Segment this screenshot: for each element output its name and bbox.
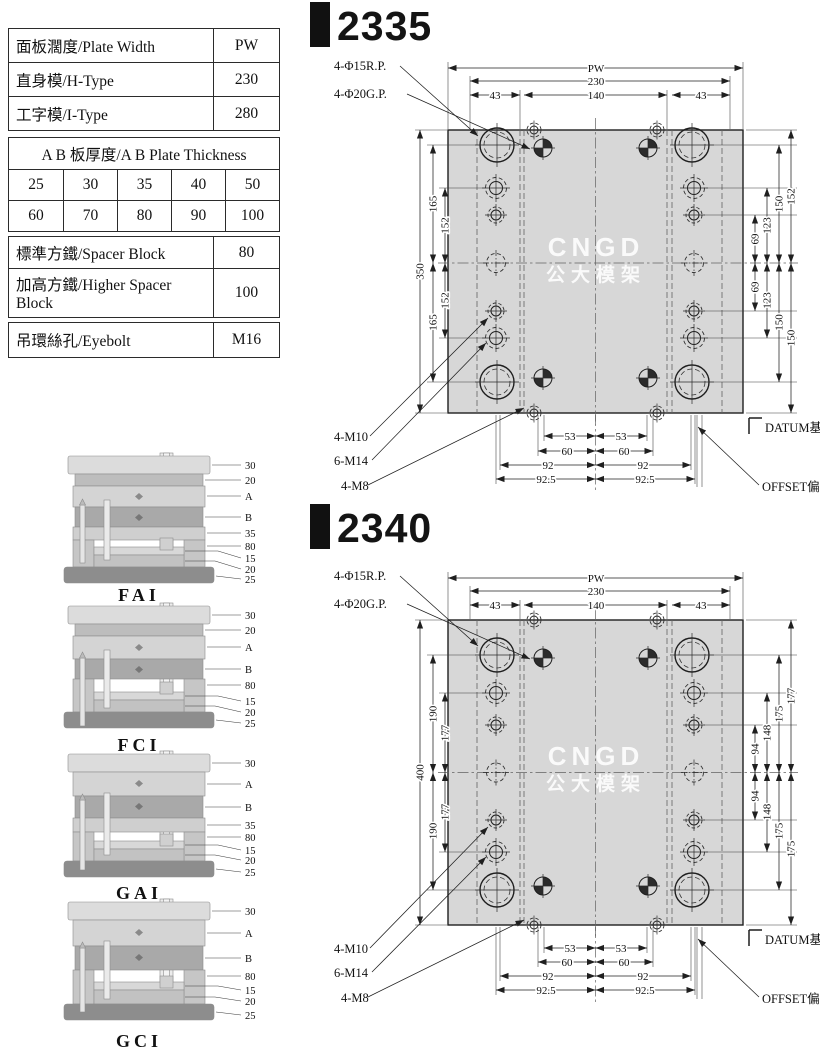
layer-label: 20 [245,856,256,867]
mold-drawing [64,453,214,583]
row-label: 直身模/H-Type [9,63,213,96]
dim-right-2-bot: 148 [762,803,774,820]
table-header: A B 板厚度/A B Plate Thickness [9,138,279,170]
thickness-cell: 30 [63,170,117,200]
dim-right-1-top: 94 [750,743,762,755]
label-return-pin: 4-Φ15R.P. [334,59,386,73]
thickness-cell: 50 [225,170,279,200]
dim-left-inner-bot: 177 [440,803,452,820]
dim-edge-left: 43 [490,90,502,102]
mold-section-fai: 30 20 A B 35 80 15 20 25 FAI [42,450,277,608]
layer-label: A [245,780,253,791]
layer-label: 30 [245,907,256,918]
layer-label: 35 [245,821,256,832]
dim-right-4-bot: 175 [786,840,798,857]
layer-label: B [245,665,252,676]
layer-label: 25 [245,575,256,586]
dim-right-4-top: 152 [786,188,798,205]
layer-label: B [245,803,252,814]
label-m14: 6-M14 [334,454,369,468]
dim-left-inner-bot: 152 [440,292,452,309]
layer-label: 80 [245,972,256,983]
dim-right-4-bot: 150 [786,329,798,346]
label-datum: DATUM基準面 [765,932,820,947]
row-value: PW [213,29,279,62]
dim-bot-4-l: 92.5 [536,985,556,997]
label-m10: 4-M10 [334,942,368,956]
dim-bot-3-r: 92 [638,460,649,472]
mold-drawing [64,899,214,1020]
row-value: 100 [213,269,279,317]
label-m10: 4-M10 [334,430,368,444]
thickness-cell: 80 [117,200,171,231]
dim-height: 400 [415,764,427,781]
table-row: 工字模/I-Type 280 [9,96,279,130]
dim-inner-width: 140 [588,600,605,612]
dim-bot-2-r: 60 [619,446,631,458]
table-row: 吊環絲孔/Eyebolt M16 [9,323,279,357]
drawing-number: 2340 [337,505,432,551]
dim-inner-width: 140 [588,90,605,102]
drawing-2335: 2335 CNGD 公大模架 [310,2,820,494]
table-row: 加高方鐵/Higher Spacer Block 100 [9,268,279,317]
dim-edge-right: 43 [696,600,708,612]
dim-right-3-top: 175 [774,705,786,722]
drawing-2340: 2340 CNGD 公大模架 [310,504,820,1006]
layer-label: A [245,492,253,503]
catalog-page: { "tables": { "plate": [ {"label": "面板濶度… [0,0,820,1054]
layer-label: 25 [245,1011,256,1022]
thickness-cell: 100 [225,200,279,231]
layer-label: 80 [245,833,256,844]
dim-right-2-top: 148 [762,724,774,741]
layer-label: 15 [245,986,256,997]
layer-label: 80 [245,542,256,553]
row-value: 80 [213,237,279,268]
table-row: 標準方鐵/Spacer Block 80 [9,237,279,268]
mold-drawing [64,603,214,728]
row-label: 加高方鐵/Higher Spacer Block [9,269,213,317]
label-return-pin: 4-Φ15R.P. [334,569,386,583]
table-row: 面板濶度/Plate Width PW [9,29,279,62]
layer-label: 15 [245,554,256,565]
layer-label: 30 [245,461,256,472]
thickness-cell: 90 [171,200,225,231]
watermark-name: 公大模架 [546,263,646,286]
dim-bot-4-r: 92.5 [635,985,655,997]
dim-pw: PW [588,63,605,75]
dim-right-2-bot: 123 [762,292,774,309]
dim-bot-2-l: 60 [562,957,574,969]
title-bar [310,504,330,549]
dim-right-1-bot: 94 [750,790,762,802]
dim-right-2-top: 123 [762,217,774,234]
layer-label: 20 [245,476,256,487]
row-label: 標準方鐵/Spacer Block [9,237,213,268]
layer-label: A [245,643,253,654]
layer-label: B [245,513,252,524]
thickness-cell: 70 [63,200,117,231]
layer-label: 30 [245,611,256,622]
layer-label: 25 [245,868,256,879]
label-m8: 4-M8 [341,991,369,1005]
drawing-number: 2335 [337,3,432,49]
row-label: 工字模/I-Type [9,97,213,130]
thickness-grid: 25 30 35 40 50 60 70 80 90 100 [9,170,279,231]
dim-width: 230 [588,586,605,598]
dim-right-4-top: 177 [786,687,798,704]
watermark-name: 公大模架 [546,772,646,795]
dim-left-outer-bot: 190 [428,822,440,839]
label-offset: OFFSET偏孔 [762,479,820,494]
label-m14: 6-M14 [334,966,369,980]
layer-label: 20 [245,626,256,637]
mold-section-fci: 30 20 A B 80 15 20 25 FCI [42,600,277,758]
layer-label: B [245,954,252,965]
row-label: 面板濶度/Plate Width [9,29,213,62]
dim-right-3-bot: 150 [774,314,786,331]
dim-bot-3-r: 92 [638,971,649,983]
dim-edge-right: 43 [696,90,708,102]
ab-plate-thickness-table: A B 板厚度/A B Plate Thickness 25 30 35 40 … [8,137,280,232]
watermark-logo: CNGD [548,232,645,262]
thickness-cell: 40 [171,170,225,200]
dim-bot-4-l: 92.5 [536,474,556,486]
label-m8: 4-M8 [341,479,369,493]
eyebolt-table: 吊環絲孔/Eyebolt M16 [8,322,280,358]
row-label: 吊環絲孔/Eyebolt [9,323,213,357]
label-offset: OFFSET偏孔 [762,991,820,1006]
dim-bot-2-l: 60 [562,446,574,458]
layer-label: 20 [245,708,256,719]
label-guide-pin: 4-Φ20G.P. [334,87,387,101]
technical-drawings: 2335 CNGD 公大模架 [310,0,820,1054]
thickness-cell: 25 [9,170,63,200]
label-guide-pin: 4-Φ20G.P. [334,597,387,611]
watermark-logo: CNGD [548,741,645,771]
dim-edge-left: 43 [490,600,502,612]
dim-right-3-top: 150 [774,195,786,212]
dim-right-1-top: 69 [750,233,762,245]
row-value: 280 [213,97,279,130]
dim-left-outer-top: 165 [428,195,440,212]
row-value: 230 [213,63,279,96]
dim-bot-4-r: 92.5 [635,474,655,486]
datum-symbol [749,930,762,946]
layer-label: 15 [245,697,256,708]
dim-bot-1-r: 53 [616,943,628,955]
datum-symbol [749,418,762,434]
dim-bot-2-r: 60 [619,957,631,969]
mold-section-gai: 30 A B 35 80 15 20 25 GAI [42,748,277,906]
dim-bot-3-l: 92 [543,971,554,983]
dim-bot-1-l: 53 [565,943,577,955]
dim-left-outer-top: 190 [428,705,440,722]
dim-right-3-bot: 175 [774,822,786,839]
layer-label: 20 [245,997,256,1008]
layer-label: 35 [245,529,256,540]
thickness-cell: 35 [117,170,171,200]
dim-pw: PW [588,573,605,585]
row-value: M16 [213,323,279,357]
layer-label: 80 [245,681,256,692]
label-datum: DATUM基準面 [765,420,820,435]
dim-right-1-bot: 69 [750,281,762,293]
dim-bot-1-l: 53 [565,431,577,443]
dim-left-inner-top: 177 [440,724,452,741]
dim-width: 230 [588,76,605,88]
section-name: GCI [116,1031,162,1051]
dim-bot-3-l: 92 [543,460,554,472]
mold-drawing [64,751,214,877]
plate-width-table: 面板濶度/Plate Width PW 直身模/H-Type 230 工字模/I… [8,28,280,131]
thickness-cell: 60 [9,200,63,231]
layer-label: A [245,929,253,940]
dim-left-inner-top: 152 [440,217,452,234]
title-bar [310,2,330,47]
dim-left-outer-bot: 165 [428,314,440,331]
mold-section-gci: 30 A B 80 15 20 25 GCI [42,896,277,1054]
table-row: 直身模/H-Type 230 [9,62,279,96]
spacer-block-table: 標準方鐵/Spacer Block 80 加高方鐵/Higher Spacer … [8,236,280,318]
layer-label: 30 [245,759,256,770]
dim-height: 350 [415,263,427,280]
layer-label: 25 [245,719,256,730]
dim-bot-1-r: 53 [616,431,628,443]
